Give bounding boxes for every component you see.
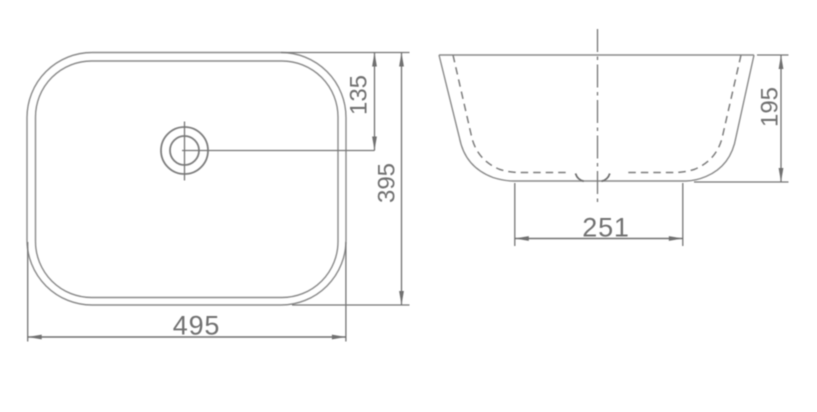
svg-text:495: 495 [173,311,220,341]
svg-text:251: 251 [582,213,629,243]
svg-text:195: 195 [757,87,784,127]
svg-text:395: 395 [374,163,401,203]
svg-text:135: 135 [346,75,373,115]
